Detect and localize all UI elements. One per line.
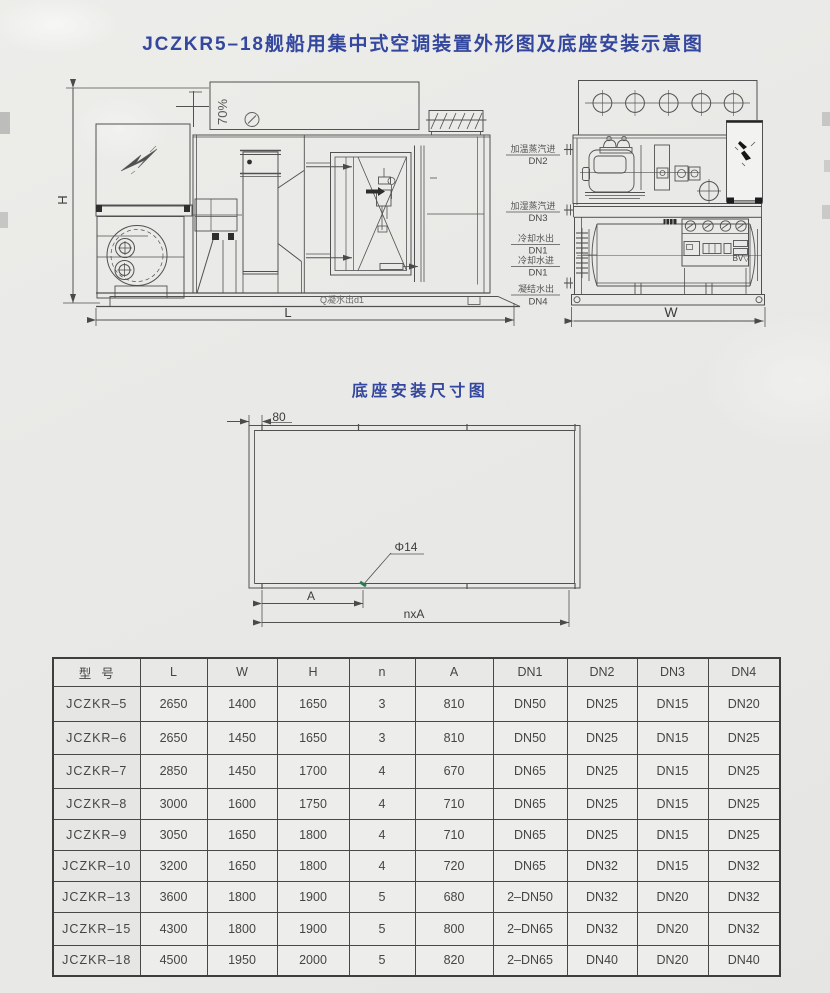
svg-text:nxA: nxA (404, 607, 425, 621)
svg-text:DN3: DN3 (528, 213, 547, 224)
svg-text:DN2: DN2 (528, 156, 547, 167)
svg-text:80: 80 (272, 410, 286, 424)
svg-text:加湿蒸汽进: 加湿蒸汽进 (510, 200, 555, 211)
svg-text:DN4: DN4 (528, 297, 547, 308)
svg-text:冷却水进: 冷却水进 (518, 255, 554, 266)
svg-text:冷却水出: 冷却水出 (518, 233, 554, 244)
svg-text:DN1: DN1 (528, 268, 547, 279)
svg-text:70%: 70% (215, 99, 230, 125)
svg-text:BV▽: BV▽ (733, 254, 751, 263)
svg-text:加温蒸汽进: 加温蒸汽进 (510, 143, 555, 154)
svg-text:A: A (307, 589, 315, 603)
svg-text:凝结水出: 凝结水出 (518, 283, 554, 294)
svg-text:Q凝水出d1: Q凝水出d1 (320, 294, 364, 305)
svg-text:W: W (664, 304, 678, 320)
svg-text:H: H (55, 195, 70, 204)
svg-text:Φ14: Φ14 (395, 540, 418, 554)
svg-text:L: L (284, 305, 291, 320)
